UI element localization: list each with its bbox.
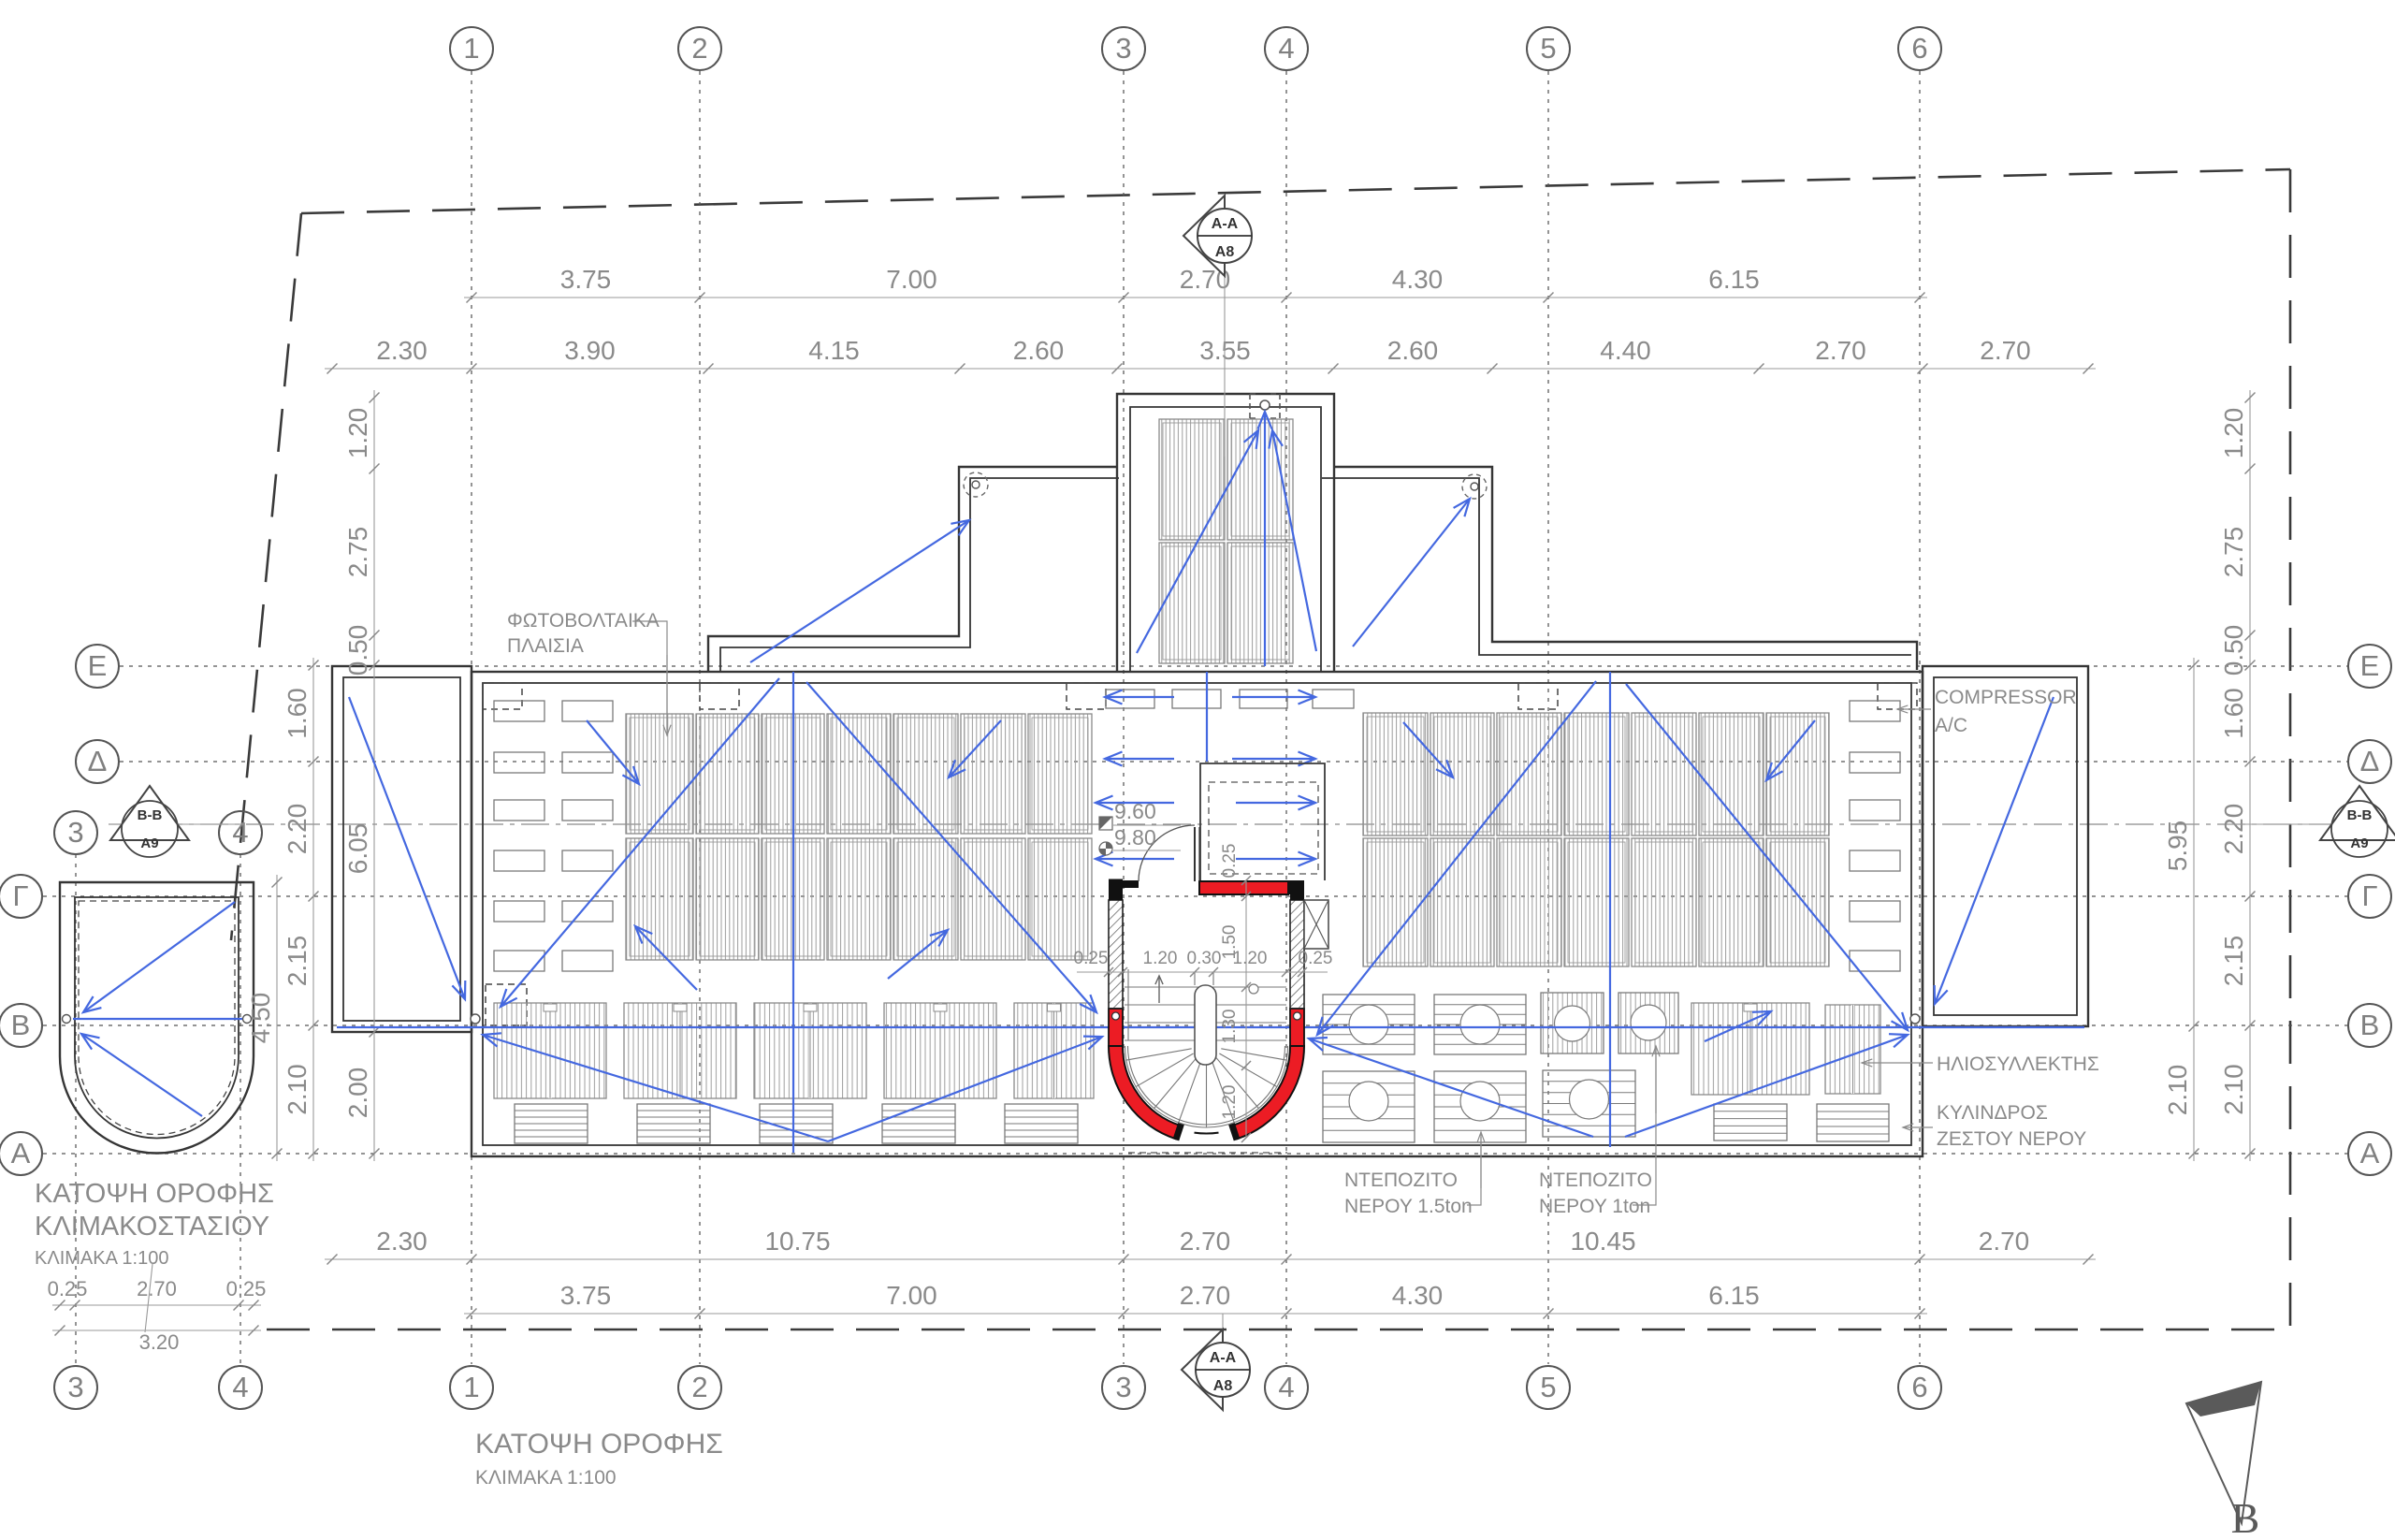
svg-text:10.45: 10.45	[1570, 1227, 1635, 1256]
svg-text:10.75: 10.75	[764, 1227, 830, 1256]
svg-text:1: 1	[463, 32, 479, 65]
svg-text:5.95: 5.95	[2163, 821, 2192, 872]
svg-text:2.15: 2.15	[2219, 936, 2248, 987]
svg-text:4.15: 4.15	[808, 336, 860, 365]
svg-text:0.50: 0.50	[2219, 625, 2248, 676]
svg-text:5: 5	[1540, 32, 1556, 65]
svg-text:ΝΕΡΟΥ 1ton: ΝΕΡΟΥ 1ton	[1539, 1196, 1650, 1217]
svg-text:2.70: 2.70	[137, 1277, 177, 1300]
svg-text:COMPRESSOR: COMPRESSOR	[1935, 687, 2077, 708]
svg-text:6.15: 6.15	[1708, 265, 1760, 294]
svg-text:0.25: 0.25	[48, 1277, 88, 1300]
svg-text:4: 4	[1278, 32, 1294, 65]
svg-text:1.20: 1.20	[1220, 1085, 1240, 1120]
svg-text:6.15: 6.15	[1708, 1281, 1760, 1310]
svg-text:B: B	[11, 1009, 31, 1041]
svg-text:2.75: 2.75	[2219, 527, 2248, 578]
svg-text:2.20: 2.20	[2219, 804, 2248, 855]
svg-text:A9: A9	[2350, 835, 2368, 851]
svg-text:ΚΛΙΜΑΚΑ 1:100: ΚΛΙΜΑΚΑ 1:100	[35, 1248, 168, 1269]
svg-text:3: 3	[1115, 1371, 1131, 1403]
svg-text:1.20: 1.20	[2219, 408, 2248, 459]
svg-text:0.25: 0.25	[1074, 949, 1109, 968]
svg-text:2.15: 2.15	[283, 936, 312, 987]
svg-text:ΝΕΡΟΥ 1.5ton: ΝΕΡΟΥ 1.5ton	[1344, 1196, 1473, 1217]
svg-text:ΝΤΕΠΟΖΙΤΟ: ΝΤΕΠΟΖΙΤΟ	[1344, 1170, 1458, 1191]
svg-text:ΖΕΣΤΟΥ ΝΕΡΟΥ: ΖΕΣΤΟΥ ΝΕΡΟΥ	[1937, 1128, 2086, 1150]
svg-text:7.00: 7.00	[886, 1281, 937, 1310]
svg-text:B: B	[2360, 1009, 2380, 1041]
svg-text:A9: A9	[140, 835, 158, 851]
svg-text:1.60: 1.60	[2219, 688, 2248, 739]
svg-text:2.10: 2.10	[283, 1064, 312, 1115]
svg-text:7.00: 7.00	[886, 265, 937, 294]
svg-text:A: A	[2360, 1137, 2380, 1170]
svg-text:3.75: 3.75	[560, 1281, 612, 1310]
svg-text:4.30: 4.30	[1392, 265, 1444, 294]
svg-text:ΚΑΤΟΨΗ ΟΡΟΦΗΣ: ΚΑΤΟΨΗ ΟΡΟΦΗΣ	[475, 1429, 723, 1460]
svg-text:A-A: A-A	[1210, 1350, 1237, 1366]
svg-text:9.80: 9.80	[1114, 825, 1156, 850]
svg-text:2: 2	[691, 32, 707, 65]
svg-text:2.60: 2.60	[1387, 336, 1439, 365]
svg-text:4.30: 4.30	[1392, 1281, 1444, 1310]
svg-text:ΗΛΙΟΣΥΛΛΕΚΤΗΣ: ΗΛΙΟΣΥΛΛΕΚΤΗΣ	[1937, 1053, 2099, 1075]
svg-text:2.70: 2.70	[1980, 336, 2031, 365]
svg-text:ΚΥΛΙΝΔΡΟΣ: ΚΥΛΙΝΔΡΟΣ	[1937, 1102, 2048, 1124]
svg-text:4.40: 4.40	[1600, 336, 1651, 365]
svg-text:2.70: 2.70	[1180, 1281, 1231, 1310]
svg-text:1.50: 1.50	[1220, 925, 1240, 960]
svg-text:3: 3	[67, 816, 83, 849]
svg-text:2.10: 2.10	[2219, 1064, 2248, 1115]
svg-text:6: 6	[1911, 1371, 1927, 1403]
svg-text:2.75: 2.75	[343, 527, 372, 578]
svg-text:5: 5	[1540, 1371, 1556, 1403]
svg-text:9.60: 9.60	[1114, 799, 1156, 823]
svg-text:1.60: 1.60	[283, 688, 312, 739]
svg-text:2.20: 2.20	[283, 804, 312, 855]
svg-text:2.30: 2.30	[376, 336, 428, 365]
svg-text:4: 4	[232, 1371, 248, 1403]
svg-text:4.50: 4.50	[246, 993, 275, 1044]
svg-text:2.70: 2.70	[1979, 1227, 2030, 1256]
svg-text:2.70: 2.70	[1180, 1227, 1231, 1256]
svg-text:A: A	[11, 1137, 31, 1170]
svg-text:Δ: Δ	[2360, 745, 2380, 777]
svg-text:2.10: 2.10	[2163, 1065, 2192, 1116]
svg-text:B-B: B-B	[2347, 807, 2373, 823]
svg-text:3.90: 3.90	[564, 336, 616, 365]
svg-text:ΚΛΙΜΑΚΑ 1:100: ΚΛΙΜΑΚΑ 1:100	[475, 1467, 617, 1489]
svg-text:1.20: 1.20	[343, 408, 372, 459]
svg-text:2.00: 2.00	[343, 1068, 372, 1119]
svg-text:4: 4	[1278, 1371, 1294, 1403]
svg-text:0.30: 0.30	[1187, 949, 1222, 968]
svg-text:Δ: Δ	[88, 745, 108, 777]
svg-text:Γ: Γ	[12, 879, 28, 912]
svg-text:2: 2	[691, 1371, 707, 1403]
svg-text:3: 3	[67, 1371, 83, 1403]
svg-text:2.30: 2.30	[376, 1227, 428, 1256]
svg-text:1.30: 1.30	[1220, 1010, 1240, 1044]
svg-text:Γ: Γ	[2361, 879, 2377, 912]
svg-text:B: B	[2231, 1494, 2260, 1540]
svg-text:0.25: 0.25	[1299, 949, 1333, 968]
svg-text:1.20: 1.20	[1143, 949, 1178, 968]
svg-text:ΠΛΑΙΣΙΑ: ΠΛΑΙΣΙΑ	[507, 635, 584, 657]
svg-text:A/C: A/C	[1935, 715, 1967, 736]
svg-text:0.50: 0.50	[343, 625, 372, 676]
svg-text:E: E	[88, 649, 108, 682]
svg-text:0.25: 0.25	[1220, 844, 1240, 879]
svg-text:3.20: 3.20	[139, 1330, 180, 1354]
svg-text:A8: A8	[1213, 1378, 1233, 1394]
svg-text:3.75: 3.75	[560, 265, 612, 294]
svg-text:E: E	[2360, 649, 2380, 682]
svg-text:4: 4	[232, 816, 248, 849]
svg-text:2.70: 2.70	[1815, 336, 1866, 365]
svg-text:ΚΛΙΜΑΚΟΣΤΑΣΙΟΥ: ΚΛΙΜΑΚΟΣΤΑΣΙΟΥ	[35, 1212, 269, 1242]
svg-text:A8: A8	[1215, 244, 1235, 260]
svg-text:ΝΤΕΠΟΖΙΤΟ: ΝΤΕΠΟΖΙΤΟ	[1539, 1170, 1652, 1191]
svg-text:ΚΑΤΟΨΗ ΟΡΟΦΗΣ: ΚΑΤΟΨΗ ΟΡΟΦΗΣ	[35, 1179, 274, 1209]
svg-text:6.05: 6.05	[343, 823, 372, 875]
svg-text:6: 6	[1911, 32, 1927, 65]
svg-text:B-B: B-B	[138, 807, 163, 823]
svg-text:0.25: 0.25	[226, 1277, 267, 1300]
svg-text:A-A: A-A	[1212, 216, 1239, 232]
svg-text:2.60: 2.60	[1013, 336, 1065, 365]
svg-text:3: 3	[1115, 32, 1131, 65]
svg-text:1: 1	[463, 1371, 479, 1403]
